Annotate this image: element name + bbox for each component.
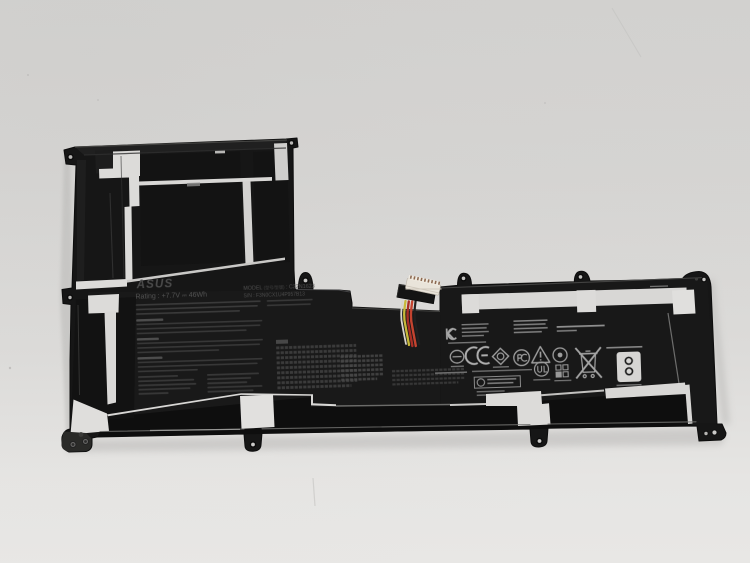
svg-text:ASUS: ASUS — [135, 278, 173, 291]
